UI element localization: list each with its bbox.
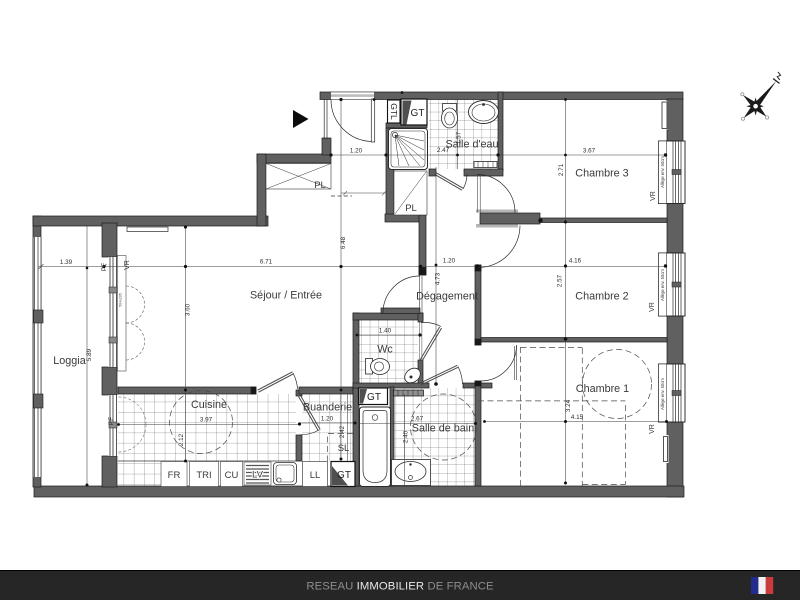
svg-text:1.57: 1.57 — [456, 131, 463, 144]
svg-text:1.20: 1.20 — [350, 148, 363, 155]
svg-text:PL: PL — [405, 203, 417, 214]
svg-text:Allège env. 50cm: Allège env. 50cm — [660, 269, 665, 301]
svg-text:PL: PL — [314, 180, 326, 191]
svg-text:PF: PF — [101, 263, 108, 271]
svg-text:3.60: 3.60 — [185, 303, 192, 316]
svg-text:3.97: 3.97 — [200, 417, 213, 424]
svg-text:CU: CU — [225, 470, 239, 481]
svg-text:Salle d'eau: Salle d'eau — [445, 139, 498, 151]
svg-text:TRI: TRI — [196, 470, 211, 481]
svg-text:3.24: 3.24 — [565, 399, 572, 412]
svg-text:Cuisine: Cuisine — [191, 399, 227, 411]
svg-text:VR: VR — [124, 260, 131, 270]
svg-text:2.40: 2.40 — [403, 430, 410, 443]
svg-text:3.67: 3.67 — [583, 148, 596, 155]
svg-text:5.89: 5.89 — [86, 348, 93, 361]
svg-text:2.12: 2.12 — [178, 433, 185, 446]
svg-text:6.71: 6.71 — [260, 259, 273, 266]
svg-text:Loggia: Loggia — [53, 355, 85, 367]
svg-text:LL: LL — [310, 470, 321, 481]
svg-text:Chambre 1: Chambre 1 — [576, 383, 629, 395]
svg-text:Séjour / Entrée: Séjour / Entrée — [250, 290, 322, 302]
svg-text:Dégagement: Dégagement — [416, 291, 478, 303]
svg-text:4.16: 4.16 — [569, 258, 582, 265]
svg-text:1.39: 1.39 — [60, 259, 73, 266]
svg-text:2.71: 2.71 — [558, 163, 565, 176]
svg-text:GT: GT — [411, 108, 425, 119]
svg-text:1.40: 1.40 — [379, 328, 392, 335]
svg-text:4.15: 4.15 — [571, 414, 584, 421]
svg-text:VR: VR — [649, 302, 656, 312]
svg-text:GT: GT — [337, 470, 351, 481]
svg-text:4.73: 4.73 — [435, 272, 442, 285]
svg-text:504x205: 504x205 — [119, 293, 123, 307]
svg-text:VR: VR — [649, 424, 656, 434]
svg-text:LV: LV — [252, 470, 264, 481]
svg-text:6.48: 6.48 — [340, 236, 347, 249]
svg-text:Chambre 2: Chambre 2 — [575, 291, 628, 303]
svg-text:Allège env. 50cm: Allège env. 50cm — [660, 156, 665, 188]
svg-text:1.20: 1.20 — [443, 258, 456, 265]
svg-text:GT: GT — [367, 392, 381, 403]
svg-text:FR: FR — [168, 470, 181, 481]
svg-text:SL: SL — [338, 443, 350, 454]
svg-text:PF: PF — [108, 417, 115, 425]
svg-text:Wc: Wc — [377, 344, 393, 356]
svg-text:GTL: GTL — [389, 103, 399, 120]
svg-text:2.42: 2.42 — [339, 425, 346, 438]
svg-text:2.47: 2.47 — [437, 147, 450, 154]
svg-text:2.57: 2.57 — [557, 274, 564, 287]
svg-text:2.67: 2.67 — [411, 416, 424, 423]
svg-text:RESEAU IMMOBILIER DE FRANCE: RESEAU IMMOBILIER DE FRANCE — [306, 581, 494, 593]
svg-text:Chambre 3: Chambre 3 — [575, 168, 628, 180]
svg-text:1.20: 1.20 — [321, 416, 334, 423]
svg-text:Allège env. 50cm: Allège env. 50cm — [660, 378, 665, 410]
svg-text:Salle de bain: Salle de bain — [412, 423, 474, 435]
svg-text:Buanderie: Buanderie — [303, 402, 352, 414]
svg-text:VR: VR — [650, 191, 657, 201]
